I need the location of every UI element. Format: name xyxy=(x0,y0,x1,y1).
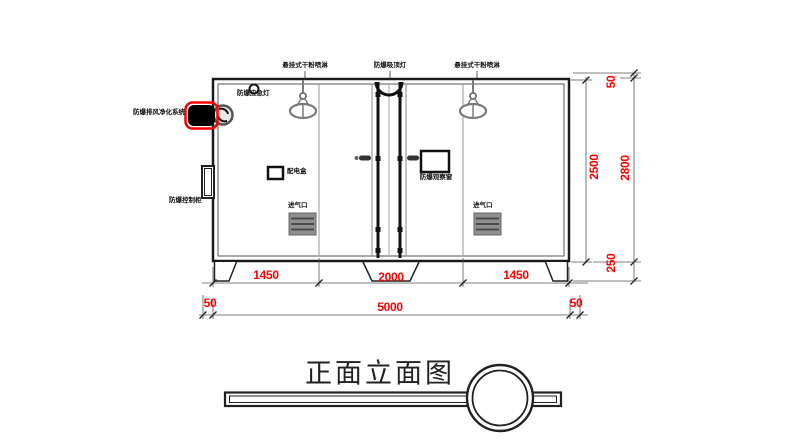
power-box-icon xyxy=(268,167,283,179)
emergency-light-label: 防爆应急灯 xyxy=(237,91,270,98)
container-outline xyxy=(213,79,569,261)
dim-total-height: 2800 xyxy=(619,155,631,181)
air-inlet-right-label: 进气口 xyxy=(473,203,493,210)
dim-top-offset: 50 xyxy=(605,76,617,89)
elevation-drawing: 悬挂式干粉喷淋 防爆吸顶灯 悬挂式干粉喷淋 防爆应急灯 防爆排风净化系统 防爆控… xyxy=(0,0,800,445)
dim-base-height: 250 xyxy=(605,253,617,272)
sprinkler-right-label: 悬挂式干粉喷淋 xyxy=(454,63,500,70)
drawing-title: 正面立面图 xyxy=(305,352,455,391)
door-handle-right xyxy=(407,156,419,161)
dim-offset-left: 50 xyxy=(204,297,217,309)
air-inlet-right-icon xyxy=(474,213,501,235)
title-circle-inner xyxy=(473,371,528,426)
dim-offset-right: 50 xyxy=(570,297,583,309)
sprinkler-left-label: 悬挂式干粉喷淋 xyxy=(282,63,328,70)
exhaust-purifier-label: 防爆排风净化系统 xyxy=(133,110,185,117)
dim-width-center: 2000 xyxy=(378,271,404,283)
observation-window-label: 防爆观察窗 xyxy=(420,175,453,182)
foot-left xyxy=(215,262,237,281)
dim-width-right: 1450 xyxy=(503,269,529,281)
control-cabinet-icon xyxy=(202,166,214,198)
control-cabinet-label: 防爆控制柜 xyxy=(169,198,202,205)
door-handle-left xyxy=(359,156,371,161)
foot-right xyxy=(546,262,568,281)
air-inlet-left-icon xyxy=(289,213,316,235)
exhaust-purifier-icon xyxy=(186,103,233,129)
power-box-label: 配电盒 xyxy=(287,169,307,176)
ceiling-light-label: 防爆吸顶灯 xyxy=(374,63,407,70)
air-inlet-left-label: 进气口 xyxy=(288,203,308,210)
dim-total-width: 5000 xyxy=(377,301,403,313)
observation-window-icon xyxy=(421,151,449,172)
dim-inner-height: 2500 xyxy=(588,154,600,180)
dim-width-left: 1450 xyxy=(253,269,279,281)
